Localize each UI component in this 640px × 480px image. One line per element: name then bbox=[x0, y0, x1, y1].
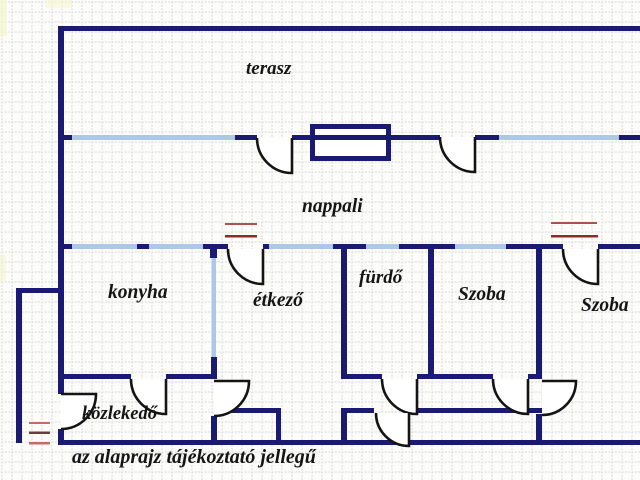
svg-text:közlekedő: közlekedő bbox=[82, 404, 159, 424]
svg-text:az alaprajz tájékoztató jelleg: az alaprajz tájékoztató jellegű bbox=[72, 446, 317, 468]
svg-text:Szoba: Szoba bbox=[581, 295, 629, 316]
svg-text:konyha: konyha bbox=[108, 282, 168, 303]
svg-text:fürdő: fürdő bbox=[359, 267, 404, 288]
svg-text:Szoba: Szoba bbox=[458, 284, 506, 305]
svg-text:terasz: terasz bbox=[246, 58, 292, 79]
svg-text:étkező: étkező bbox=[253, 290, 304, 311]
svg-text:nappali: nappali bbox=[302, 196, 363, 217]
